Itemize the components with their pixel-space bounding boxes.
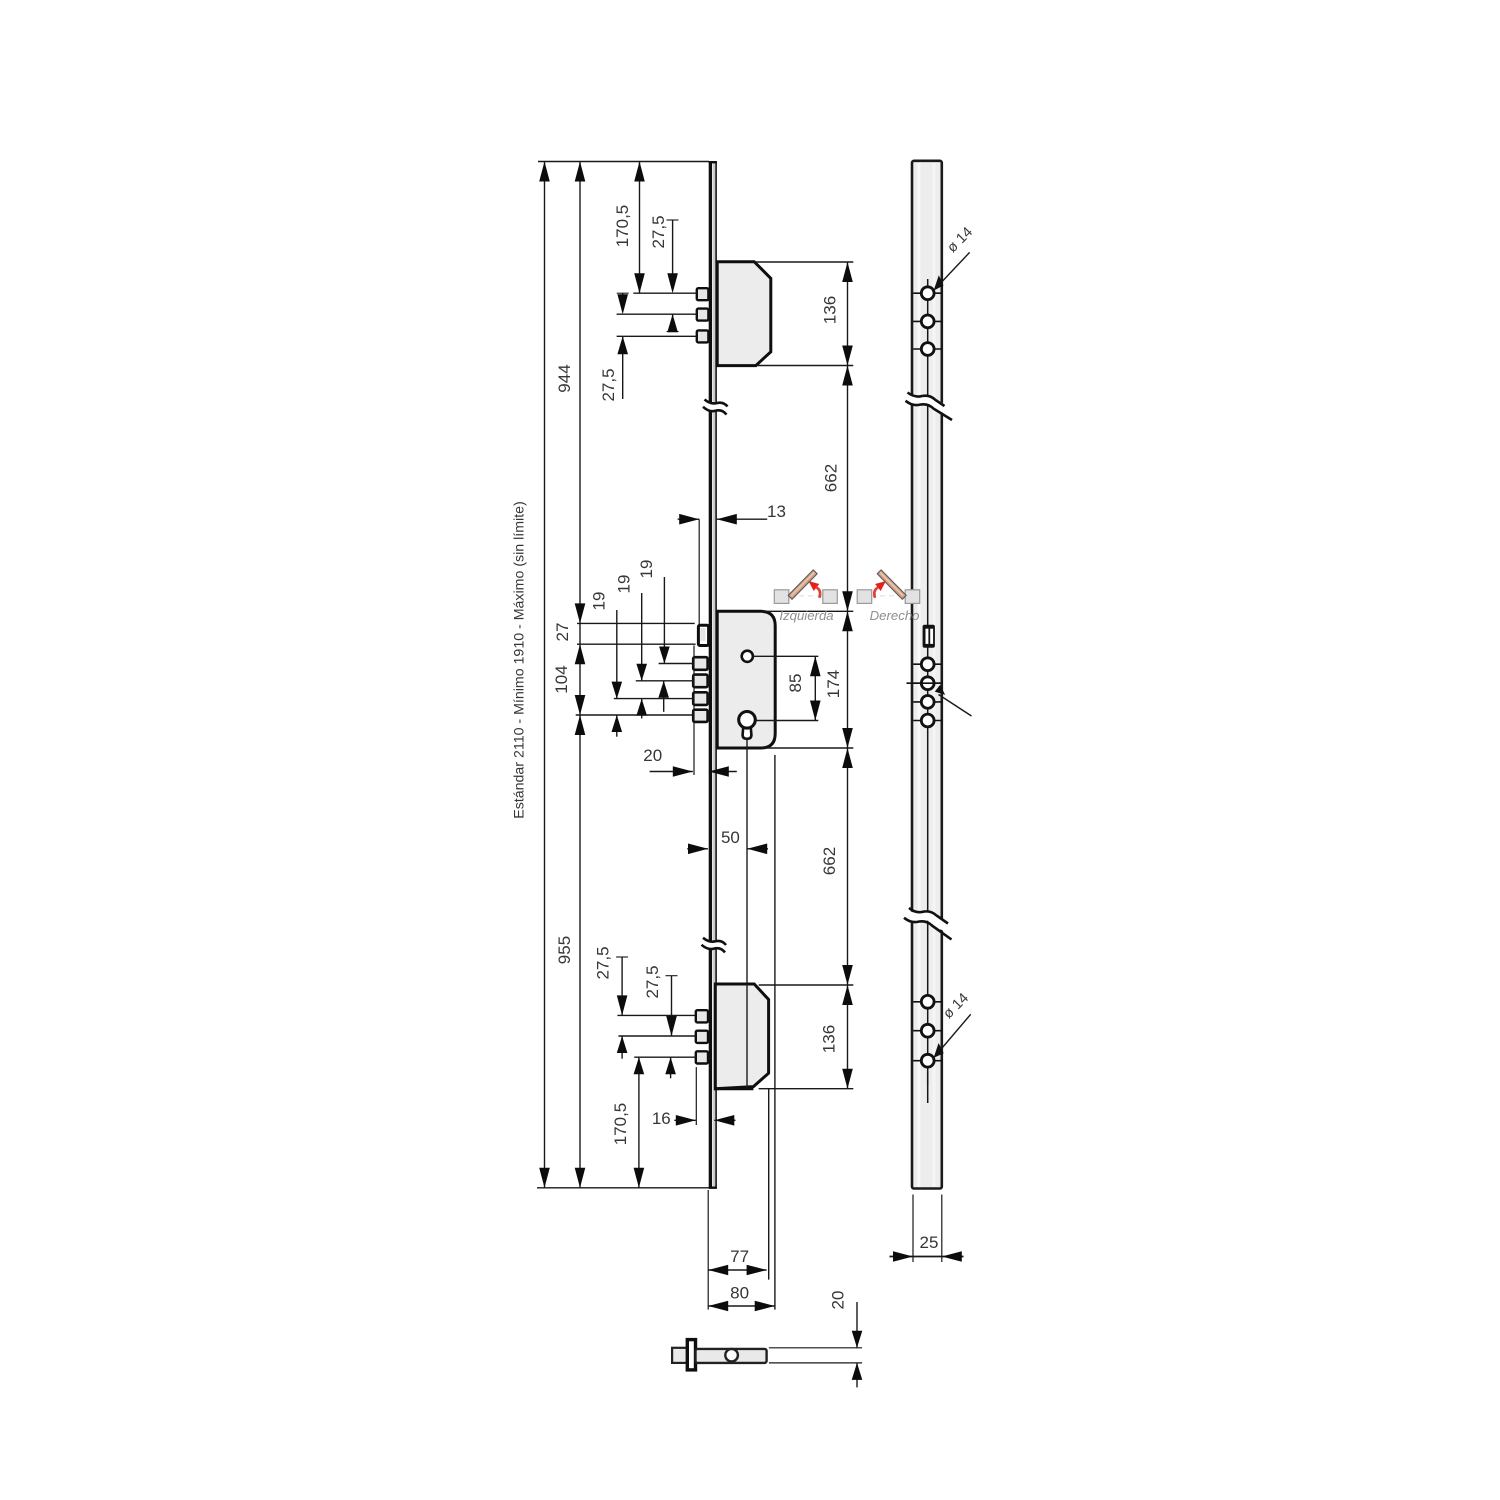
svg-text:170,5: 170,5 bbox=[613, 205, 632, 248]
svg-text:27,5: 27,5 bbox=[599, 368, 618, 401]
svg-text:662: 662 bbox=[820, 847, 839, 875]
svg-text:136: 136 bbox=[820, 1025, 839, 1053]
svg-text:27: 27 bbox=[553, 623, 572, 642]
svg-text:13: 13 bbox=[767, 502, 786, 521]
svg-text:Izquierda: Izquierda bbox=[779, 608, 833, 623]
svg-text:19: 19 bbox=[637, 560, 656, 579]
svg-text:80: 80 bbox=[730, 1284, 749, 1303]
svg-text:25: 25 bbox=[920, 1233, 939, 1252]
svg-text:50: 50 bbox=[721, 828, 740, 847]
svg-text:16: 16 bbox=[652, 1109, 671, 1128]
svg-text:27,5: 27,5 bbox=[649, 215, 668, 248]
svg-text:955: 955 bbox=[555, 936, 574, 964]
svg-text:170,5: 170,5 bbox=[611, 1103, 630, 1146]
svg-text:27,5: 27,5 bbox=[594, 946, 613, 979]
svg-text:174: 174 bbox=[824, 670, 843, 698]
svg-text:77: 77 bbox=[730, 1247, 749, 1266]
svg-text:104: 104 bbox=[552, 665, 571, 693]
svg-text:27,5: 27,5 bbox=[643, 965, 662, 998]
svg-text:944: 944 bbox=[555, 364, 574, 392]
svg-text:Estándar 2110 - Mínimo 1910 -: Estándar 2110 - Mínimo 1910 - Máximo (si… bbox=[512, 501, 528, 819]
svg-text:20: 20 bbox=[829, 1291, 848, 1310]
svg-text:85: 85 bbox=[786, 674, 805, 693]
svg-text:19: 19 bbox=[615, 575, 634, 594]
svg-text:136: 136 bbox=[820, 296, 839, 324]
svg-text:19: 19 bbox=[590, 592, 609, 611]
svg-text:20: 20 bbox=[643, 746, 662, 765]
svg-text:Derecho: Derecho bbox=[870, 608, 920, 623]
svg-text:662: 662 bbox=[822, 464, 841, 492]
